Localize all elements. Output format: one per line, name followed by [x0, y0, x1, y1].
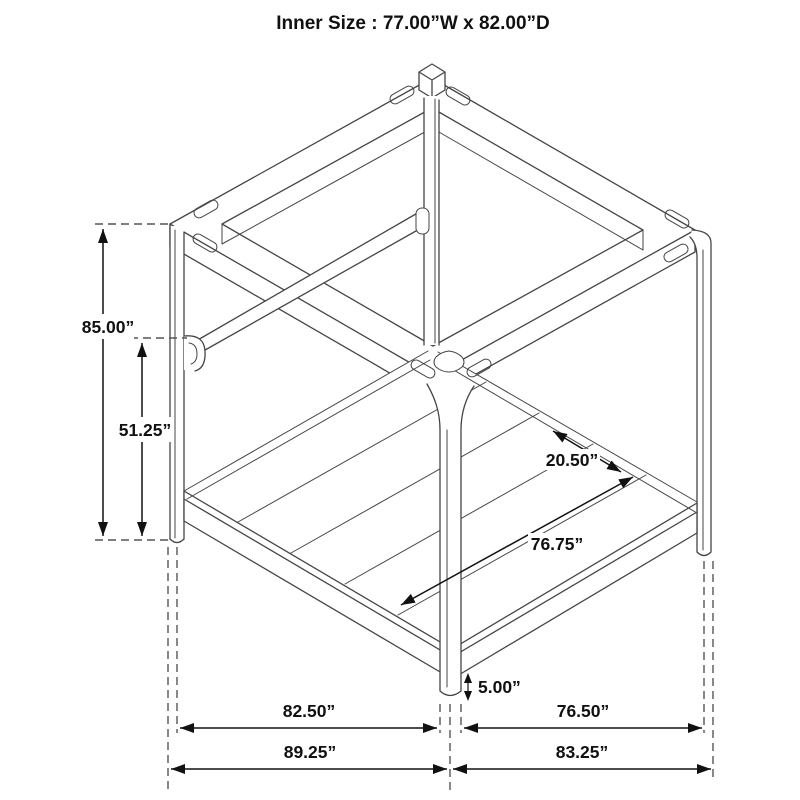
bed-frame-diagram: 85.00” 51.25” 20.50” 76.75” 5.00”	[0, 0, 800, 800]
dim-inner-width-label: 82.50”	[283, 701, 336, 721]
dim-rail-height: 51.25”	[116, 343, 174, 536]
dim-inner-depth-label: 76.75”	[531, 534, 584, 554]
dim-clearance-label: 5.00”	[478, 677, 521, 697]
dim-bottom-inner-depth-label: 76.50”	[557, 701, 610, 721]
dim-inner-depth-bottom: 76.50”	[464, 701, 702, 728]
rail-bracket	[184, 336, 205, 371]
dim-floor-clearance: 5.00”	[464, 673, 521, 701]
page-title: Inner Size : 77.00”W x 82.00”D	[276, 13, 550, 34]
dimension-diagram-page: 85.00” 51.25” 20.50” 76.75” 5.00”	[0, 0, 800, 800]
dim-outer-depth-label: 83.25”	[556, 742, 609, 762]
dim-outer-depth: 83.25”	[453, 742, 711, 769]
dim-outer-width: 89.25”	[171, 742, 447, 769]
dim-rail-height-label: 51.25”	[119, 420, 172, 440]
dim-outer-width-label: 89.25”	[284, 742, 337, 762]
dim-overall-height: 85.00”	[82, 229, 135, 536]
dim-inner-width: 82.50”	[180, 701, 437, 728]
dim-height-label: 85.00”	[82, 317, 135, 337]
rear-corner-block	[419, 64, 445, 98]
dim-slat-gap-label: 20.50”	[546, 450, 599, 470]
